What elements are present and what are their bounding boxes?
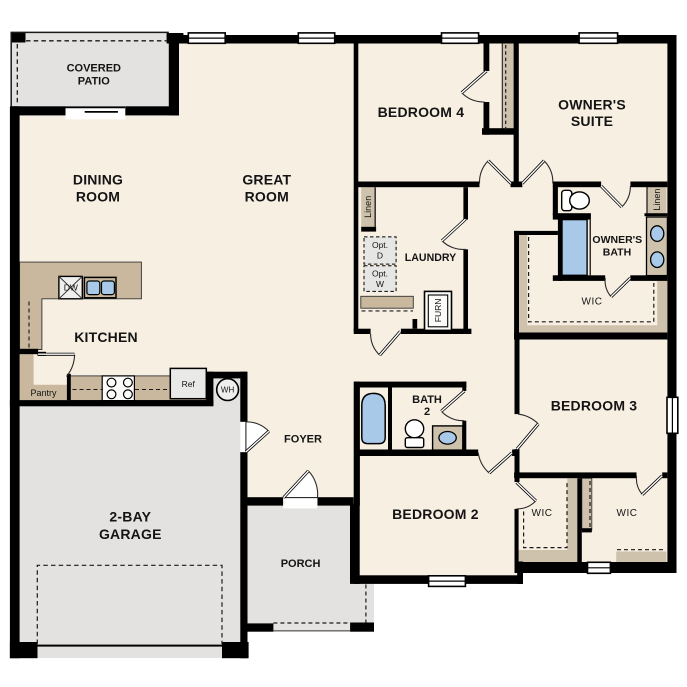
svg-text:WIC: WIC — [617, 508, 638, 519]
svg-text:BEDROOM 2: BEDROOM 2 — [392, 506, 479, 522]
svg-text:ROOM: ROOM — [76, 188, 120, 204]
svg-text:BEDROOM 4: BEDROOM 4 — [378, 104, 465, 120]
svg-text:LAUNDRY: LAUNDRY — [405, 252, 456, 264]
svg-text:W: W — [376, 279, 384, 289]
svg-text:OWNER'S: OWNER'S — [558, 96, 626, 112]
svg-text:Ref: Ref — [182, 379, 196, 389]
svg-text:DINING: DINING — [73, 172, 123, 188]
svg-text:SUITE: SUITE — [571, 113, 613, 129]
svg-text:Pantry: Pantry — [30, 388, 57, 398]
svg-text:2-BAY: 2-BAY — [109, 509, 151, 525]
svg-text:ROOM: ROOM — [245, 188, 289, 204]
svg-text:OWNER'S: OWNER'S — [592, 234, 642, 246]
svg-text:BEDROOM 3: BEDROOM 3 — [551, 398, 638, 414]
svg-text:PATIO: PATIO — [78, 75, 110, 87]
svg-text:BATH: BATH — [412, 394, 442, 406]
svg-text:KITCHEN: KITCHEN — [74, 329, 138, 345]
svg-text:FURN: FURN — [433, 299, 443, 323]
svg-text:BATH: BATH — [603, 247, 631, 259]
svg-text:WH: WH — [221, 386, 235, 395]
svg-text:WIC: WIC — [532, 508, 553, 519]
svg-text:2: 2 — [424, 406, 430, 418]
svg-text:COVERED: COVERED — [67, 62, 121, 74]
svg-text:Opt.: Opt. — [372, 268, 388, 278]
svg-text:FOYER: FOYER — [284, 434, 322, 446]
svg-text:Linen: Linen — [363, 196, 373, 218]
svg-text:Opt.: Opt. — [372, 240, 388, 250]
svg-text:WIC: WIC — [582, 297, 603, 308]
svg-text:PORCH: PORCH — [281, 558, 321, 570]
svg-text:GREAT: GREAT — [242, 172, 291, 188]
svg-text:GARAGE: GARAGE — [99, 526, 162, 542]
svg-text:D: D — [377, 250, 383, 260]
svg-text:Linen: Linen — [652, 189, 662, 211]
svg-text:DW: DW — [64, 283, 78, 293]
